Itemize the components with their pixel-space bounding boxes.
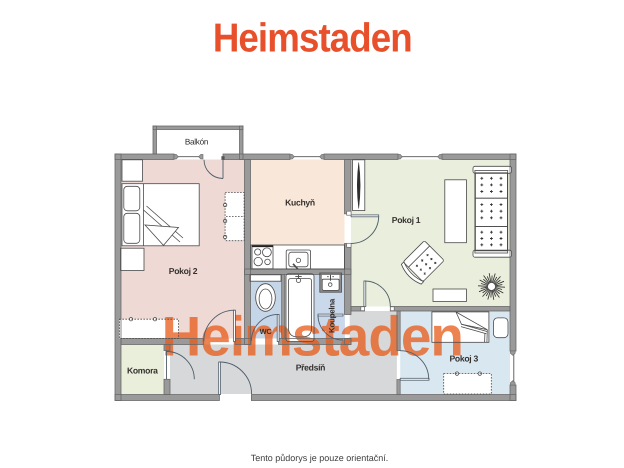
svg-text:Kuchyň: Kuchyň <box>285 198 315 208</box>
svg-text:Pokoj 3: Pokoj 3 <box>449 353 478 363</box>
svg-text:Pokoj 1: Pokoj 1 <box>392 215 421 225</box>
svg-text:WC: WC <box>260 327 273 336</box>
svg-text:Tento půdorys je pouze orienta: Tento půdorys je pouze orientační. <box>251 453 389 463</box>
svg-text:Balkón: Balkón <box>185 137 209 146</box>
svg-text:Komora: Komora <box>127 365 158 375</box>
svg-text:Heimstaden: Heimstaden <box>213 15 412 61</box>
svg-text:Předsíň: Předsíň <box>296 363 325 373</box>
svg-text:Heimstaden: Heimstaden <box>162 305 463 368</box>
svg-text:Koupelna: Koupelna <box>327 298 336 333</box>
svg-text:Pokoj 2: Pokoj 2 <box>169 266 198 276</box>
